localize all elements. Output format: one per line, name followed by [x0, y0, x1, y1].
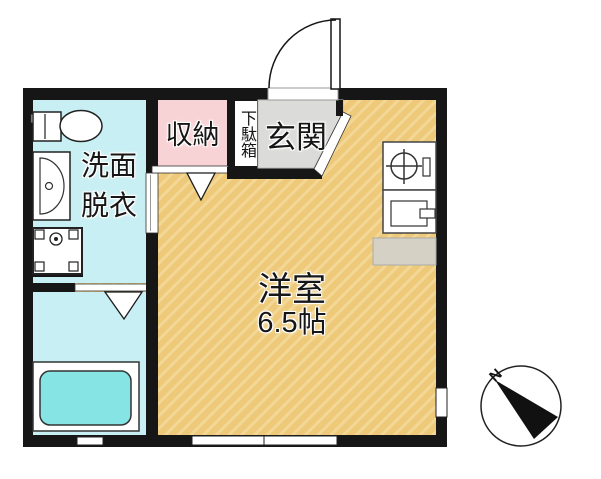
grill-bar: [423, 158, 430, 176]
washroom-bathroom-wall: [33, 283, 75, 292]
toilet-tank: [33, 112, 61, 141]
bathtub-icon: [40, 371, 131, 425]
washer-corner-bl: [35, 262, 44, 271]
shoe-cabinet: [234, 100, 258, 167]
faucet: [420, 209, 435, 218]
entrance-door-leaf: [331, 19, 340, 89]
washer-corner-tl: [35, 230, 44, 239]
vanity-drain: [46, 183, 53, 190]
floorplan-canvas: [0, 0, 601, 479]
closet-floor: [158, 100, 227, 167]
window-right-wall: [436, 388, 447, 417]
washroom-door-opening: [146, 173, 158, 233]
entrance-door-threshold: [268, 88, 338, 100]
entrance-wall-stub: [336, 100, 343, 116]
washer-corner-br: [69, 262, 78, 271]
floorplan: 洗面 脱衣 収納 下駄箱 玄関 洋室 6.5帖 N: [0, 0, 601, 479]
window-bottom-bathroom: [77, 437, 103, 445]
bathroom-door-opening: [75, 284, 153, 291]
kitchen-counter: [373, 238, 436, 265]
closet-door: [152, 166, 228, 173]
toilet-bowl-icon: [60, 111, 102, 142]
wet-area-right-wall: [146, 100, 158, 435]
washer-drain-dot: [54, 237, 58, 241]
entrance-bottom-wall: [227, 167, 322, 179]
entrance-door-swing-arc-icon: [269, 20, 336, 88]
washer-corner-tr: [69, 230, 78, 239]
